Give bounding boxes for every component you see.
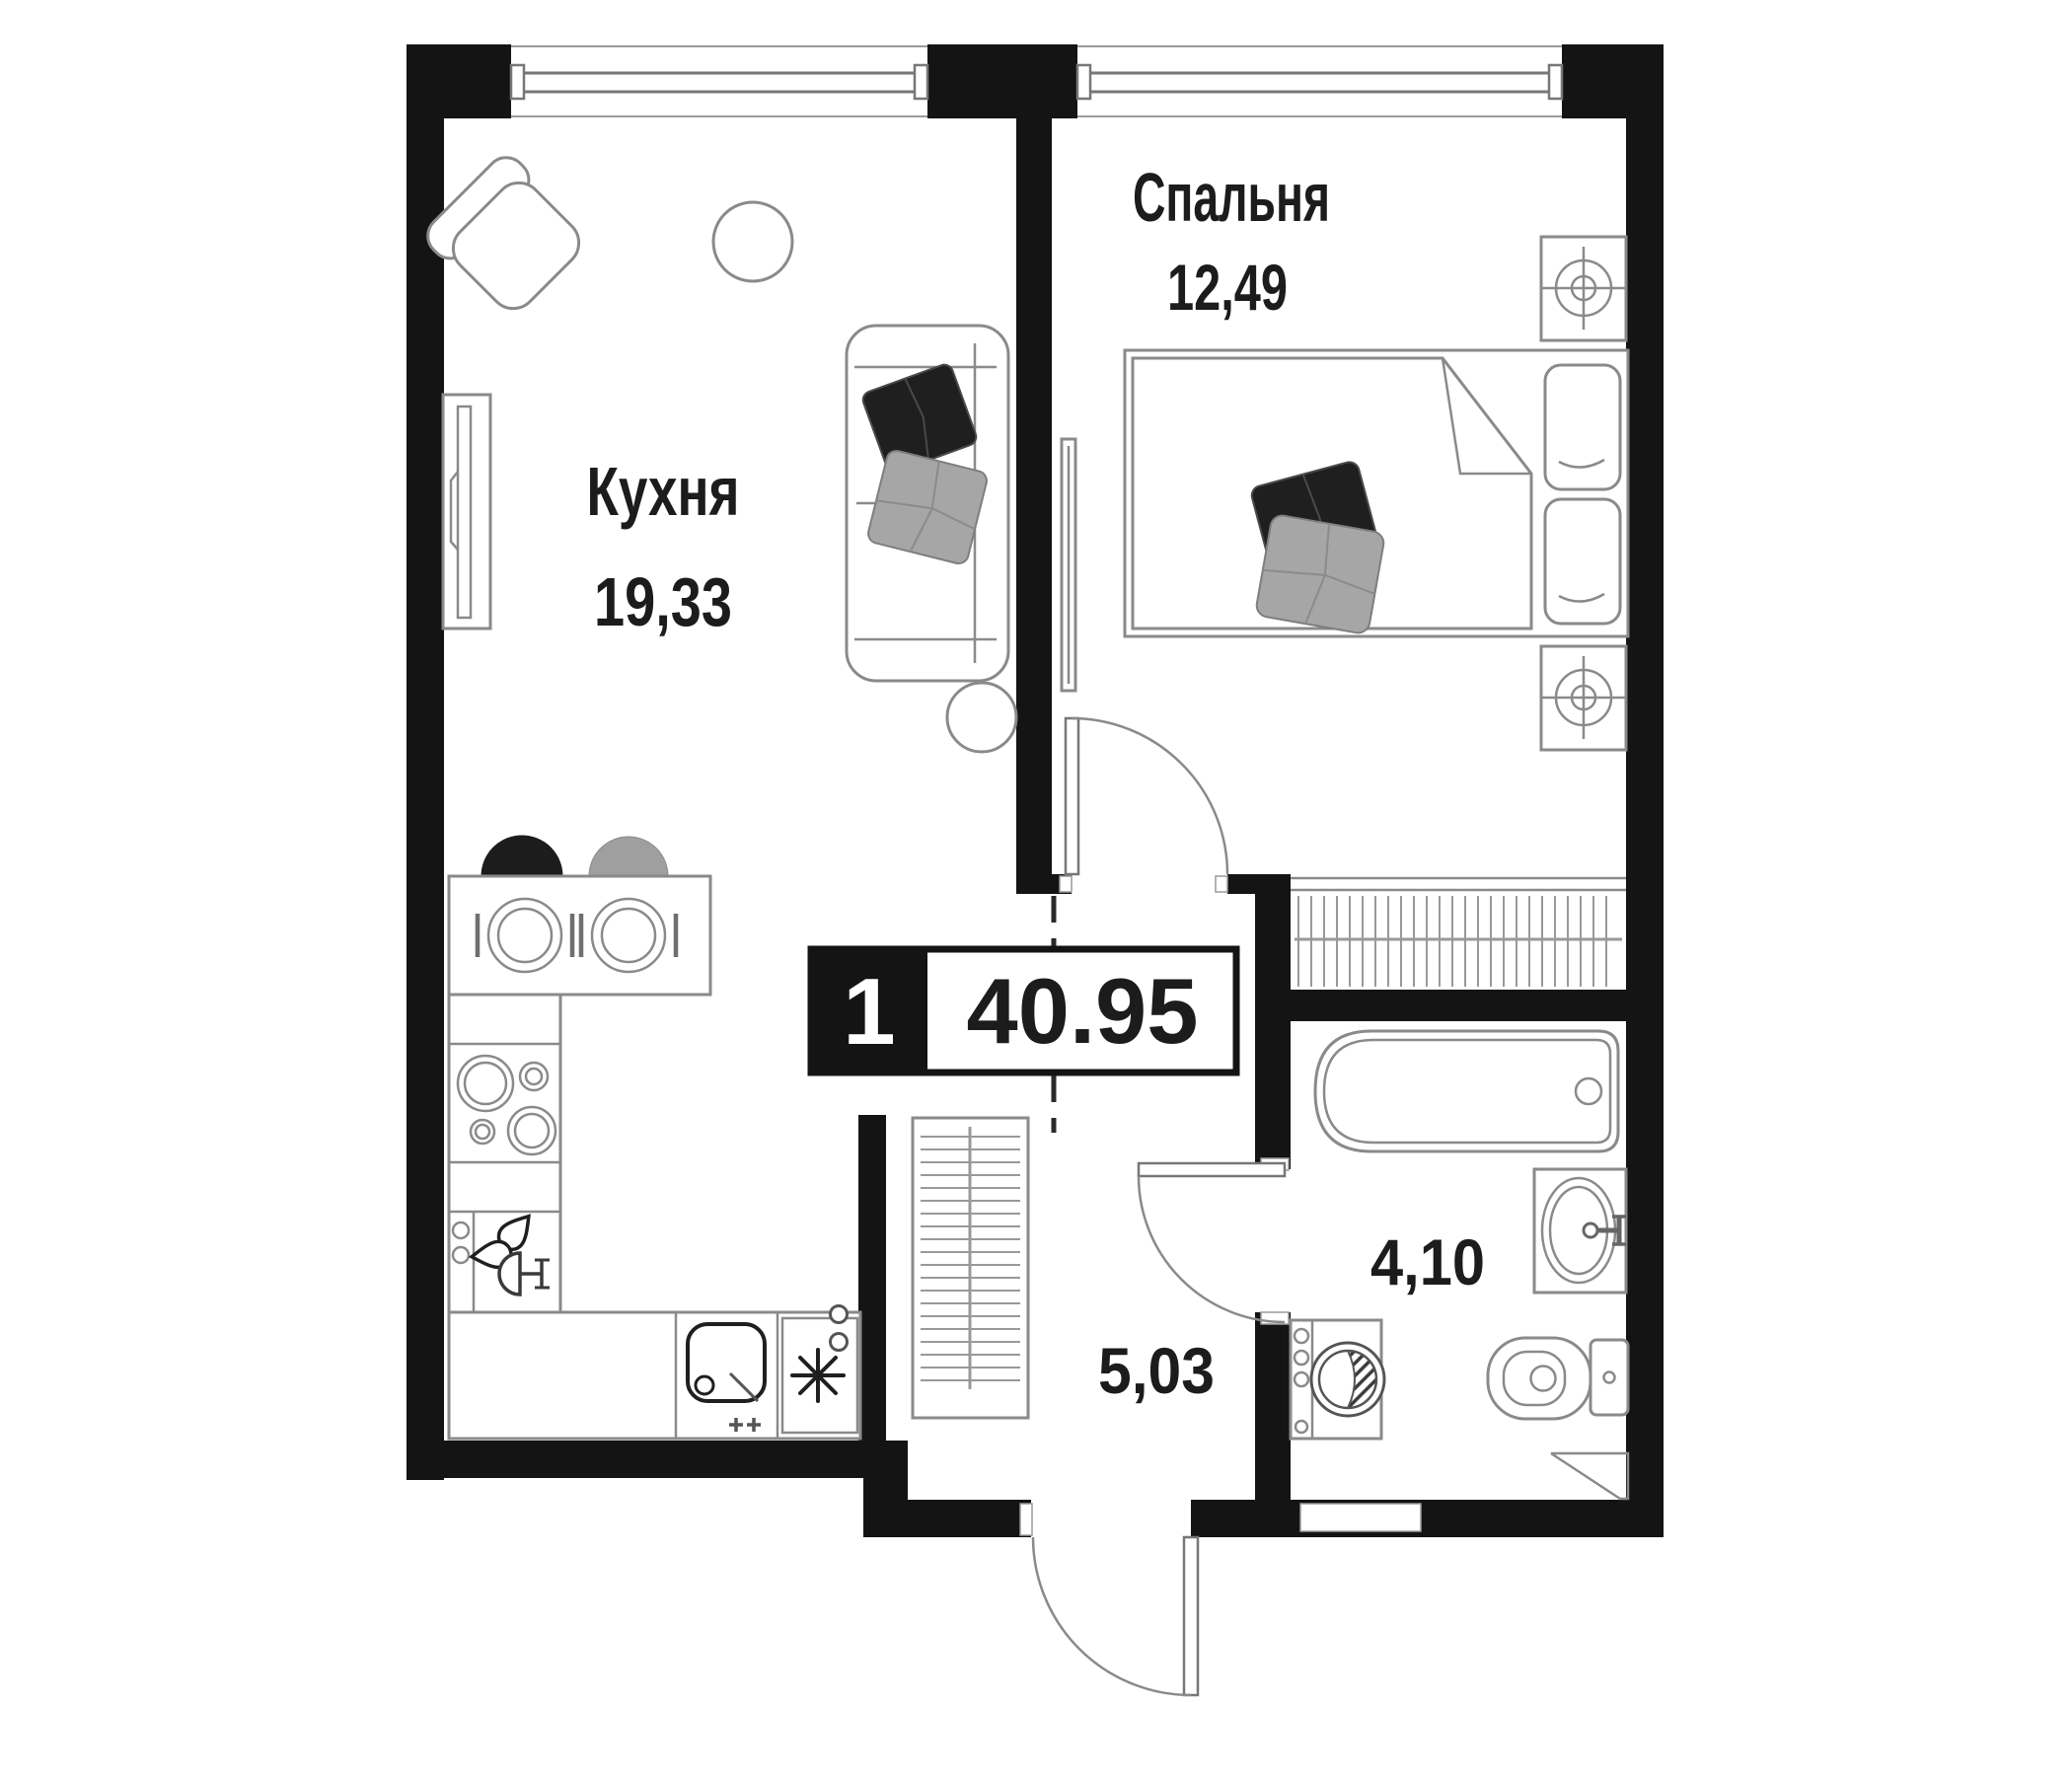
bar-stool-black: [481, 836, 562, 876]
kitchen-counter-bottom: [449, 1306, 860, 1440]
door-bathroom: [1139, 1158, 1289, 1324]
door-bedroom: [1060, 718, 1227, 892]
bed-pillow-2: [1545, 499, 1620, 624]
badge-total-area: 40.95: [967, 959, 1199, 1063]
floor-plan-drawing: Кухня 19,33 Спальня 12,49 4,10 5,03 1 40…: [0, 0, 2072, 1776]
tv-kitchen: [443, 395, 490, 629]
window-kitchen: [511, 46, 927, 116]
area-badge: 1 40.95: [811, 949, 1236, 1073]
door-swing-arc: [1139, 1176, 1285, 1322]
door-entrance: [1020, 1504, 1198, 1695]
toilet: [1488, 1338, 1628, 1419]
armchair: [419, 149, 594, 324]
door-leaf: [1066, 718, 1078, 874]
washing-machine: [1291, 1320, 1384, 1439]
coffee-table-top: [713, 202, 792, 281]
bathtub: [1315, 1031, 1618, 1151]
bedroom-area: 12,49: [1167, 251, 1288, 324]
washbasin: [1534, 1169, 1626, 1293]
kitchen-counter-left: [449, 995, 560, 1312]
coffee-table-bottom: [947, 683, 1016, 752]
nightstand-bottom: [1541, 646, 1626, 750]
bedroom-label: Спальня: [1133, 159, 1330, 236]
door-swing-arc: [1033, 1537, 1191, 1695]
floor-plan-page: Кухня 19,33 Спальня 12,49 4,10 5,03 1 40…: [0, 0, 2072, 1776]
badge-room-count: 1: [843, 959, 895, 1065]
door-leaf: [1184, 1537, 1198, 1695]
door-swing-arc: [1072, 718, 1227, 874]
bar-stool-gray: [589, 837, 668, 876]
bath-mat: [1551, 1453, 1628, 1499]
window-bedroom: [1077, 46, 1562, 116]
hall-wardrobe: [913, 1118, 1028, 1418]
hallway-area: 5,03: [1098, 1334, 1215, 1407]
dishwasher-star-icon: [792, 1350, 844, 1401]
bathroom-area: 4,10: [1370, 1225, 1485, 1298]
kitchen-label: Кухня: [587, 453, 740, 530]
nightstand-top: [1541, 237, 1626, 340]
bed-pillow-gray: [1255, 514, 1385, 635]
built-in-closet: [1291, 878, 1626, 987]
bed: [1125, 350, 1628, 636]
vent-niche: [1300, 1504, 1421, 1531]
door-leaf: [1139, 1163, 1285, 1176]
kitchen-area: 19,33: [594, 563, 732, 640]
tv-bedroom: [1062, 439, 1075, 691]
bar-counter: [449, 836, 710, 995]
bed-pillow-1: [1545, 365, 1620, 489]
